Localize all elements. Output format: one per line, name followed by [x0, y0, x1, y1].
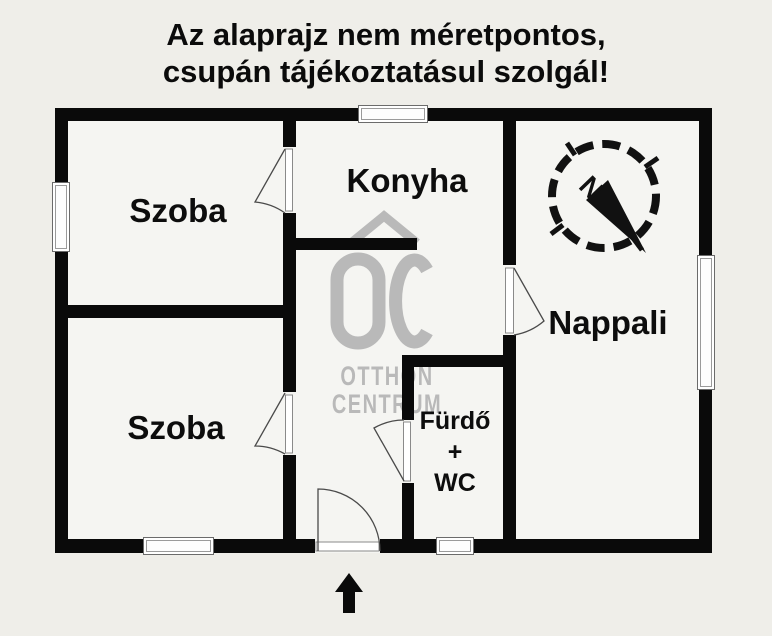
- entrance-arrow-icon: [335, 573, 363, 613]
- bathroom-label-line-1: Fürdő: [405, 406, 505, 437]
- room-label-konyha: Konyha: [327, 163, 487, 199]
- door-entrance-icon: [316, 489, 380, 551]
- compass-icon: N: [551, 143, 658, 253]
- bathroom-label-line-3: WC: [405, 468, 505, 499]
- bathroom-label-line-2: +: [405, 437, 505, 468]
- door-szoba-bottom-icon: [255, 393, 293, 454]
- room-label-szoba-bottom: Szoba: [96, 410, 256, 446]
- floor-plan-page: Az alaprajz nem méretpontos, csupán tájé…: [0, 0, 772, 636]
- room-label-bathroom: Fürdő + WC: [405, 406, 505, 499]
- room-label-nappali: Nappali: [528, 305, 688, 341]
- door-szoba-top-icon: [255, 149, 293, 213]
- room-label-szoba-top: Szoba: [98, 193, 258, 229]
